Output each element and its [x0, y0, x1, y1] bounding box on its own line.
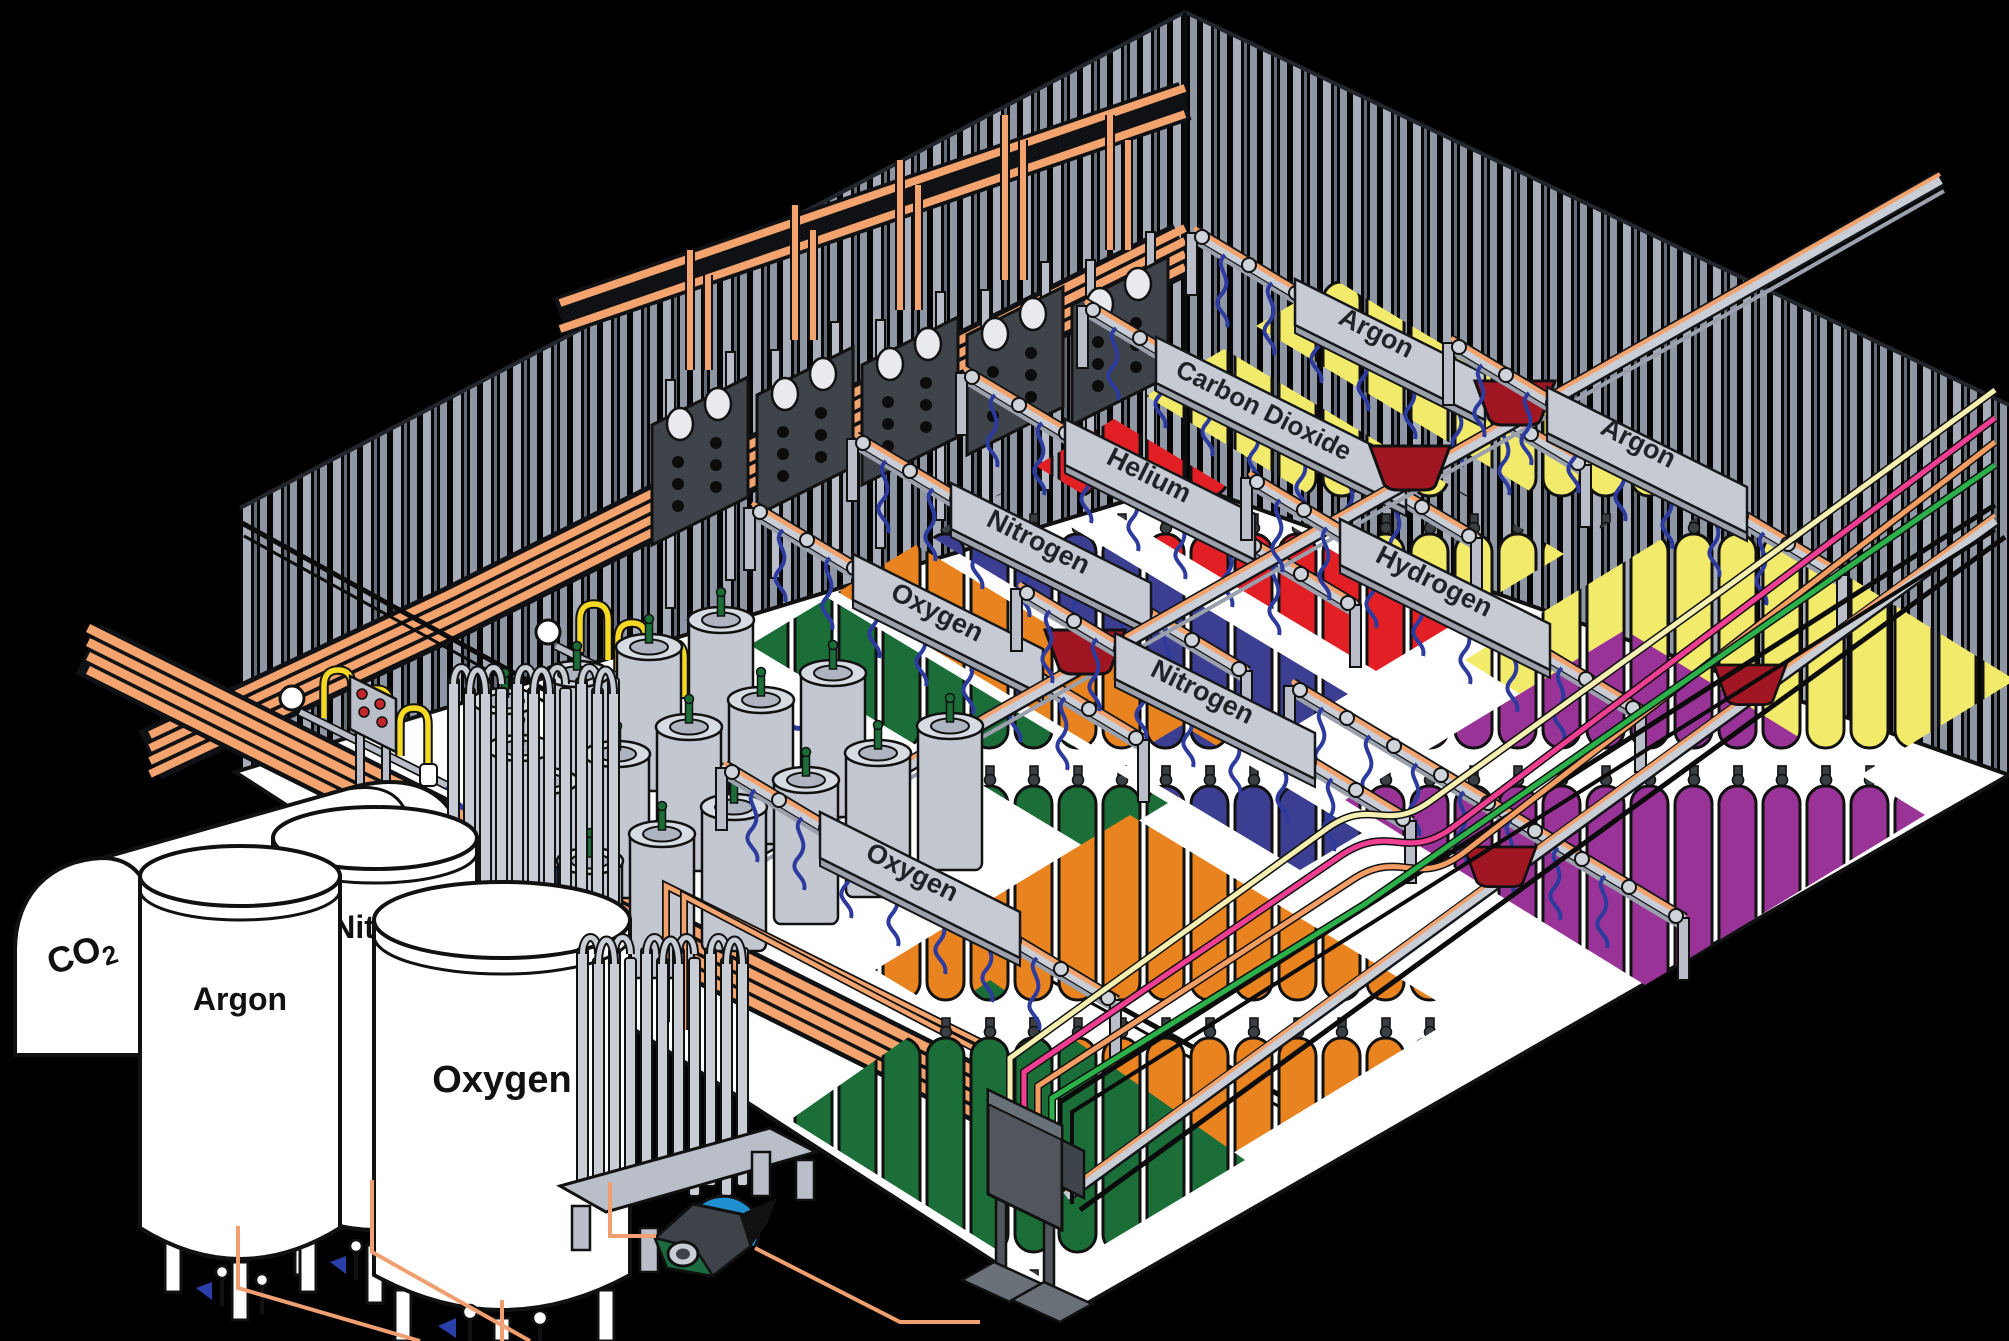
tank-label-argon: Argon: [193, 981, 287, 1017]
tank-label-oxygen: Oxygen: [432, 1059, 571, 1101]
bulk-tank-oxygen: Oxygen: [374, 882, 630, 1341]
gas-plant-diagram: Argon Carbon Dioxide Helium Nitrogen Oxy…: [0, 0, 2009, 1341]
